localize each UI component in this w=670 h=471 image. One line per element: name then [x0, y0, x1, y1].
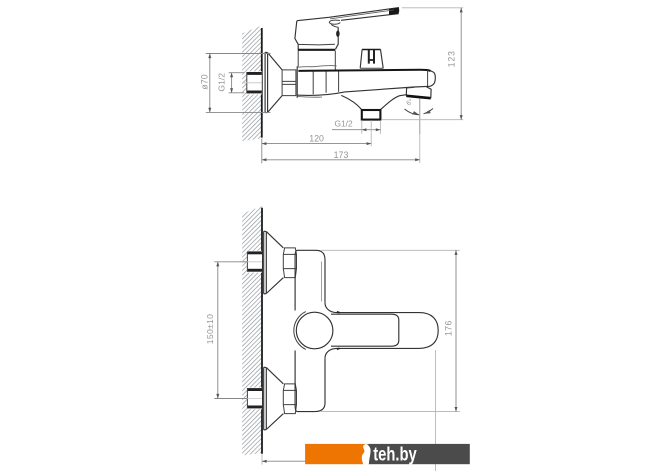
svg-text:G1/2: G1/2 [335, 119, 353, 129]
svg-text:teh.by: teh.by [373, 445, 417, 466]
svg-text:ø70: ø70 [199, 74, 209, 89]
svg-text:G1/2: G1/2 [217, 73, 227, 92]
svg-text:6°: 6° [405, 97, 415, 107]
svg-text:173: 173 [334, 150, 349, 160]
svg-text:123: 123 [447, 50, 457, 67]
svg-text:176: 176 [444, 320, 454, 336]
svg-text:150±10: 150±10 [205, 314, 215, 344]
svg-text:120: 120 [309, 134, 324, 144]
